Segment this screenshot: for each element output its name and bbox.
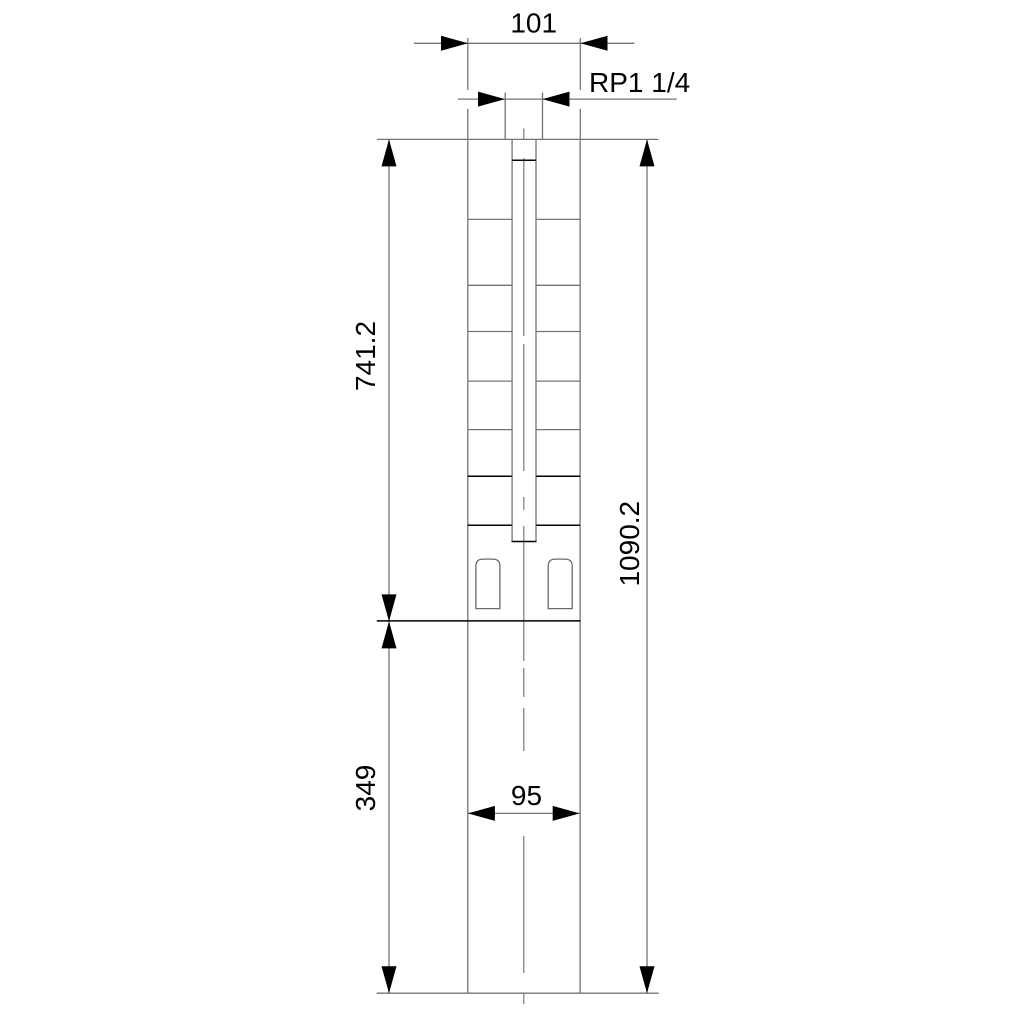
- svg-text:349: 349: [350, 765, 381, 812]
- svg-text:741.2: 741.2: [350, 321, 381, 391]
- svg-text:RP1 1/4: RP1 1/4: [589, 67, 690, 98]
- svg-text:101: 101: [510, 7, 557, 38]
- svg-text:95: 95: [511, 780, 542, 811]
- svg-text:1090.2: 1090.2: [614, 501, 645, 587]
